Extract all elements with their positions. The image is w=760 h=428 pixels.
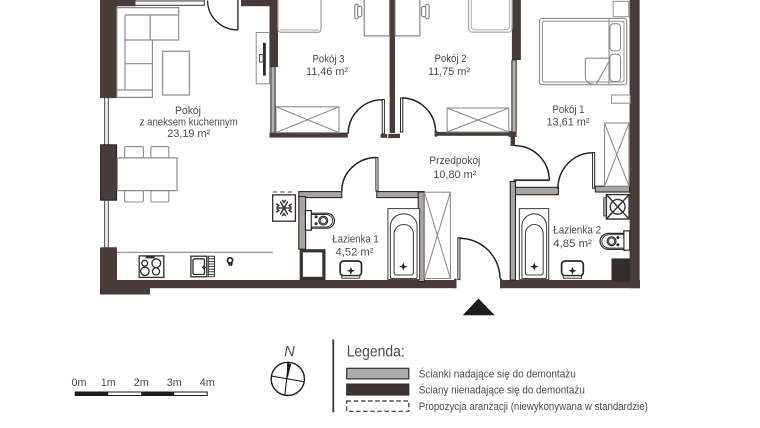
svg-text:3m: 3m — [167, 377, 182, 389]
svg-text:4,52 m²: 4,52 m² — [336, 247, 374, 259]
svg-text:2m: 2m — [134, 377, 149, 389]
svg-text:Ściany nienadające się do demo: Ściany nienadające się do demontażu — [419, 384, 585, 397]
svg-text:11,46 m²: 11,46 m² — [306, 66, 348, 78]
svg-text:10,80 m²: 10,80 m² — [433, 169, 476, 181]
svg-text:Pokój 3: Pokój 3 — [313, 54, 345, 66]
svg-text:13,61 m²: 13,61 m² — [547, 117, 590, 129]
svg-text:Ścianki nadające się do demont: Ścianki nadające się do demontażu — [419, 368, 576, 381]
svg-text:Pokój 2: Pokój 2 — [435, 53, 467, 65]
svg-text:Łazienka 2: Łazienka 2 — [553, 224, 601, 236]
svg-text:4,85 m²: 4,85 m² — [553, 238, 592, 250]
svg-text:Pokój: Pokój — [175, 105, 201, 117]
svg-text:Łazienka 1: Łazienka 1 — [332, 234, 379, 246]
svg-text:11,75 m²: 11,75 m² — [428, 66, 470, 78]
svg-text:0m: 0m — [72, 377, 87, 389]
svg-text:23,19 m²: 23,19 m² — [167, 128, 210, 140]
svg-text:Legenda:: Legenda: — [347, 344, 405, 361]
svg-text:1m: 1m — [101, 377, 116, 389]
svg-text:Pokój 1: Pokój 1 — [553, 104, 585, 116]
svg-text:N: N — [284, 344, 295, 360]
svg-text:4m: 4m — [200, 377, 215, 389]
svg-text:Propozycja aranżacji (niewykon: Propozycja aranżacji (niewykonywana w st… — [419, 401, 648, 413]
svg-text:Przedpokój: Przedpokój — [429, 155, 480, 167]
svg-text:z aneksem kuchennym: z aneksem kuchennym — [140, 117, 238, 129]
